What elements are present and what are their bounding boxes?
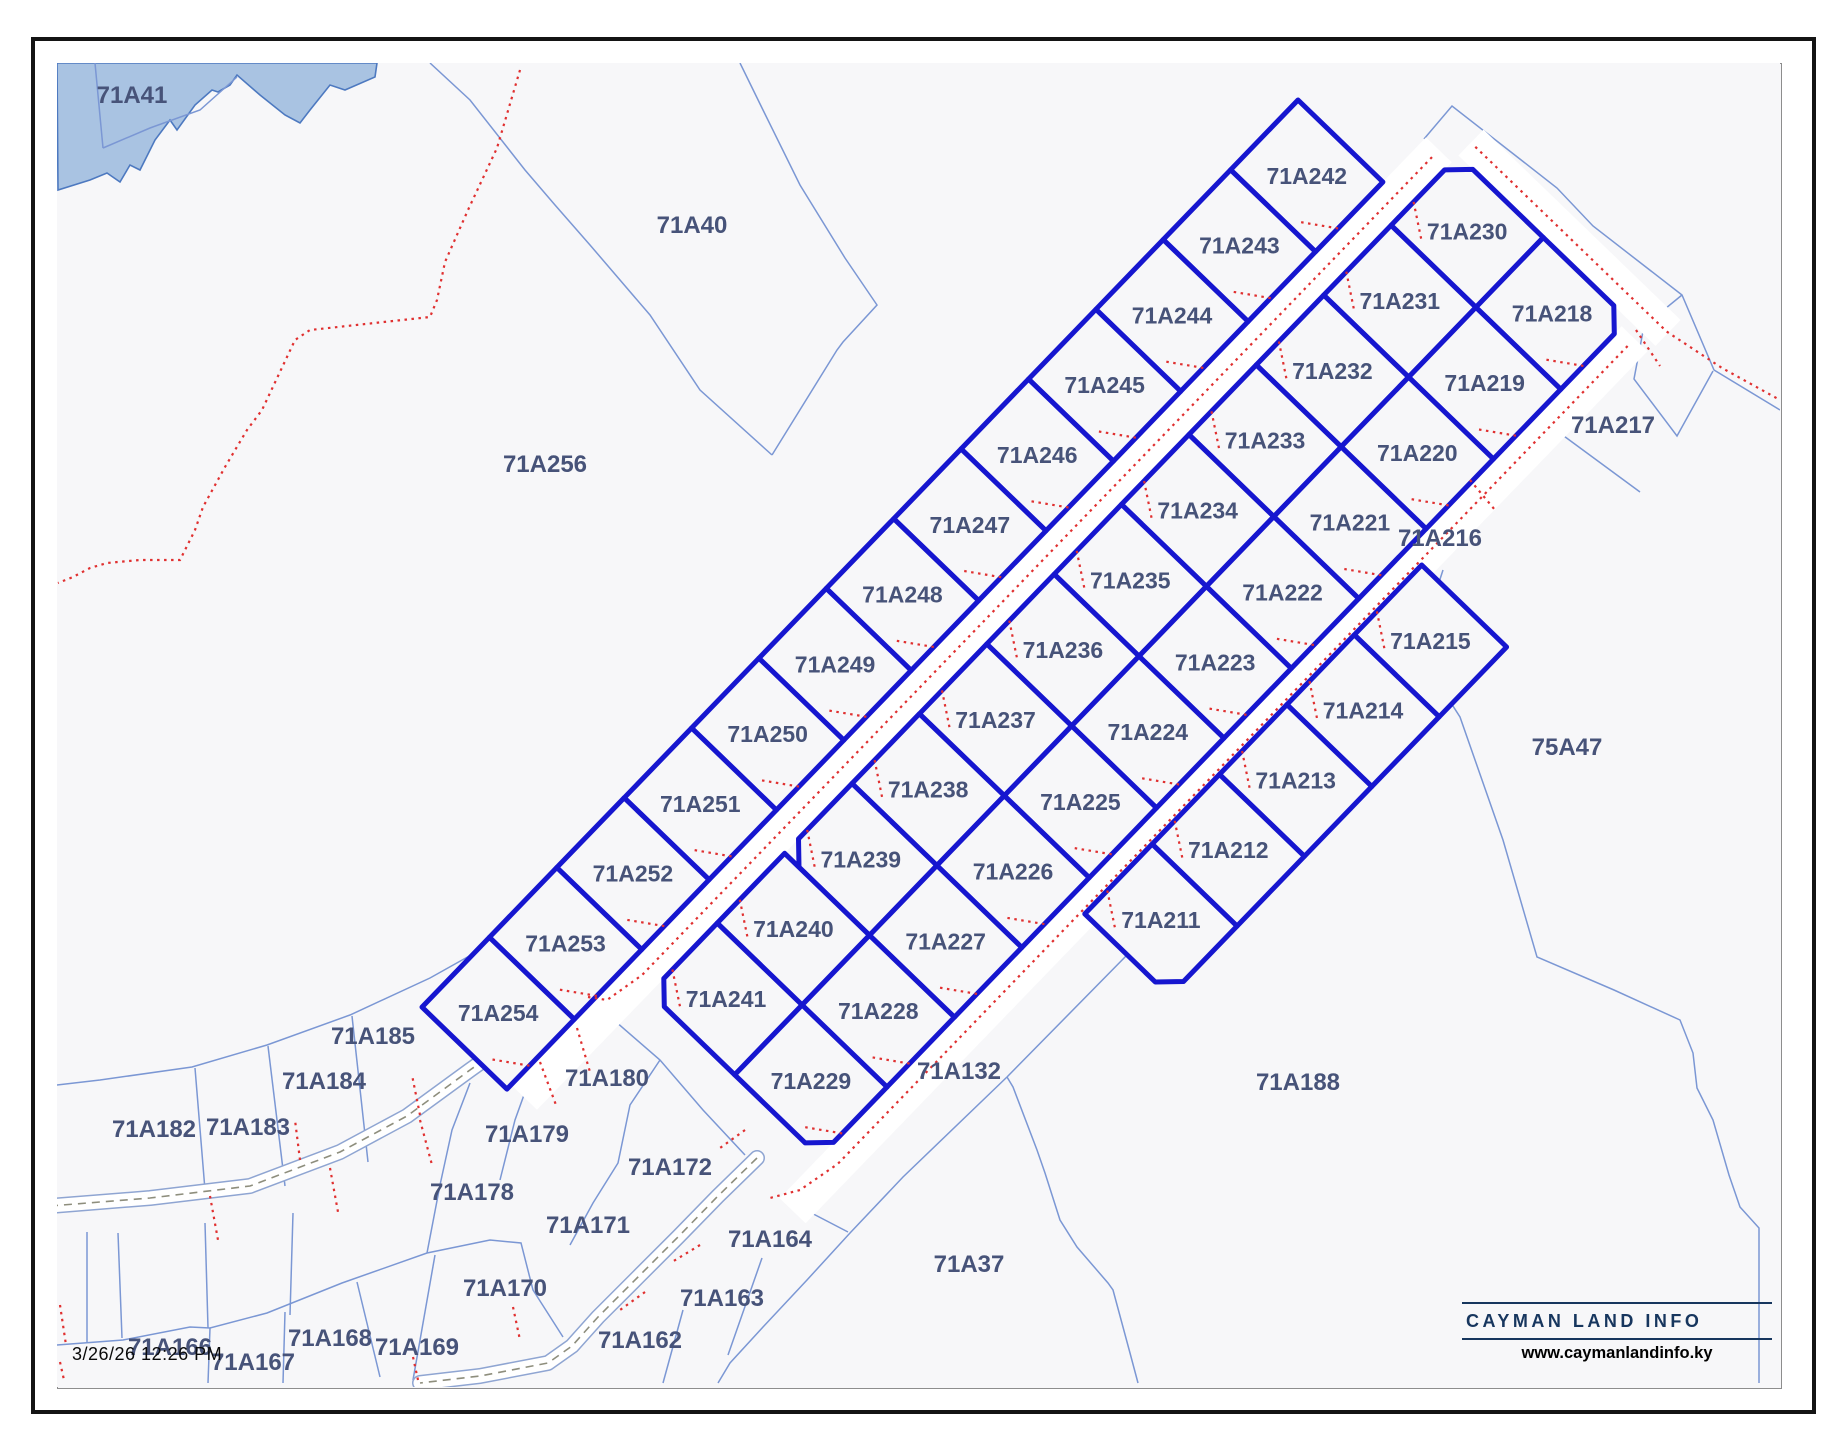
parcel-label: 71A236 xyxy=(1023,637,1104,663)
outer-parcel-label: 71A40 xyxy=(657,212,728,239)
parcel-label: 71A226 xyxy=(973,859,1054,885)
timestamp: 3/26/26 12:26 PM xyxy=(72,1344,222,1365)
outer-parcel-label: 71A37 xyxy=(934,1251,1005,1278)
parcel-label: 71A244 xyxy=(1132,302,1213,328)
outer-parcel-label: 71A41 xyxy=(97,82,168,109)
outer-parcel-label: 71A163 xyxy=(680,1285,764,1312)
parcel-label: 71A215 xyxy=(1390,628,1471,654)
parcel-label: 71A229 xyxy=(771,1068,852,1094)
parcel-label: 71A246 xyxy=(997,442,1078,468)
outer-parcel-label: 71A217 xyxy=(1571,412,1655,439)
map-screenshot: 71A24271A24371A24471A24571A24671A24771A2… xyxy=(0,0,1843,1445)
outer-parcel-label: 71A183 xyxy=(206,1114,290,1141)
parcel-label: 71A211 xyxy=(1121,907,1201,933)
outer-parcel-label: 71A180 xyxy=(565,1065,649,1092)
parcel-label: 71A223 xyxy=(1175,649,1256,675)
parcel-label: 71A239 xyxy=(820,846,901,872)
parcel-label: 71A232 xyxy=(1292,358,1373,384)
outer-parcel-label: 71A167 xyxy=(211,1349,295,1376)
outer-parcel-label: 71A170 xyxy=(463,1275,547,1302)
outer-parcel-label: 71A256 xyxy=(503,451,587,478)
parcel-label: 71A251 xyxy=(660,791,741,817)
parcel-label: 71A248 xyxy=(862,582,943,608)
parcel-label: 71A227 xyxy=(905,928,986,954)
parcel-label: 71A237 xyxy=(955,707,1036,733)
outer-parcel-label: 71A216 xyxy=(1398,525,1482,552)
outer-parcel-label: 71A132 xyxy=(917,1058,1001,1085)
parcel-label: 71A230 xyxy=(1427,218,1508,244)
parcel-label: 71A243 xyxy=(1199,233,1280,259)
outer-parcel-label: 71A164 xyxy=(728,1226,813,1253)
parcel-label: 71A214 xyxy=(1323,698,1404,724)
parcel-label: 71A247 xyxy=(930,512,1011,538)
outer-parcel-label: 71A182 xyxy=(112,1116,196,1143)
parcel-label: 71A213 xyxy=(1255,767,1336,793)
parcel-label: 71A252 xyxy=(593,861,674,887)
outer-parcel-label: 71A184 xyxy=(282,1068,367,1095)
parcel-label: 71A233 xyxy=(1225,428,1306,454)
parcel-label: 71A220 xyxy=(1377,440,1458,466)
parcel-label: 71A254 xyxy=(458,1000,539,1026)
parcel-label: 71A235 xyxy=(1090,567,1171,593)
map-content: 71A24271A24371A24471A24571A24671A24771A2… xyxy=(50,63,1780,1387)
outer-parcel-label: 71A179 xyxy=(485,1121,569,1148)
parcel-label: 71A221 xyxy=(1310,510,1391,536)
outer-parcel-label: 71A172 xyxy=(628,1154,712,1181)
parcel-label: 71A222 xyxy=(1242,579,1323,605)
parcel-label: 71A234 xyxy=(1157,498,1238,524)
outer-parcel-label: 71A168 xyxy=(288,1325,372,1352)
outer-parcel-label: 71A188 xyxy=(1256,1069,1340,1096)
parcel-label: 71A228 xyxy=(838,998,919,1024)
globe-icon xyxy=(1462,1278,1564,1384)
parcel-label: 71A253 xyxy=(525,930,606,956)
outer-parcel-label: 71A171 xyxy=(546,1212,630,1239)
parcel-label: 71A224 xyxy=(1107,719,1188,745)
outer-parcel-label: 71A169 xyxy=(375,1334,459,1361)
cadastral-map: 71A24271A24371A24471A24571A24671A24771A2… xyxy=(0,0,1843,1445)
parcel-label: 71A231 xyxy=(1360,288,1441,314)
parcel-label: 71A212 xyxy=(1188,837,1269,863)
parcel-label: 71A218 xyxy=(1512,300,1593,326)
outer-parcel-label: 75A47 xyxy=(1532,734,1603,761)
parcel-label: 71A241 xyxy=(686,986,767,1012)
parcel-label: 71A225 xyxy=(1040,789,1121,815)
parcel-label: 71A238 xyxy=(888,777,969,803)
parcel-label: 71A245 xyxy=(1064,372,1145,398)
outer-parcel-label: 71A178 xyxy=(430,1179,514,1206)
outer-parcel-label: 71A185 xyxy=(331,1023,415,1050)
cayman-land-info-logo: CAYMAN LAND INFO www.caymanlandinfo.ky xyxy=(1462,1278,1772,1386)
outer-parcel-label: 71A162 xyxy=(598,1327,682,1354)
parcel-label: 71A242 xyxy=(1266,163,1347,189)
parcel-label: 71A250 xyxy=(727,721,808,747)
parcel-label: 71A249 xyxy=(795,651,876,677)
parcel-label: 71A240 xyxy=(753,916,834,942)
parcel-label: 71A219 xyxy=(1444,370,1525,396)
